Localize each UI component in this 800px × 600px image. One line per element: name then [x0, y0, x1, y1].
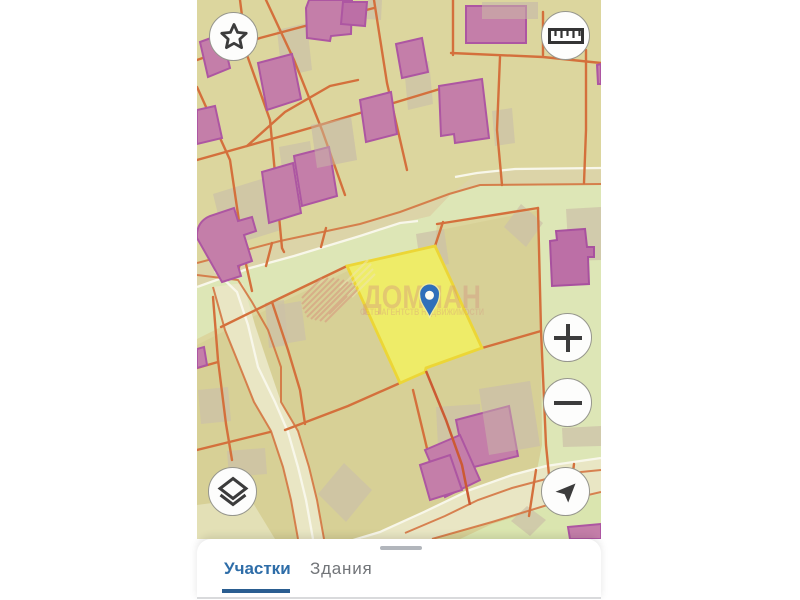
- svg-text:СЕТЬ АГЕНТСТВ НЕДВИЖИМОСТИ: СЕТЬ АГЕНТСТВ НЕДВИЖИМОСТИ: [360, 307, 484, 317]
